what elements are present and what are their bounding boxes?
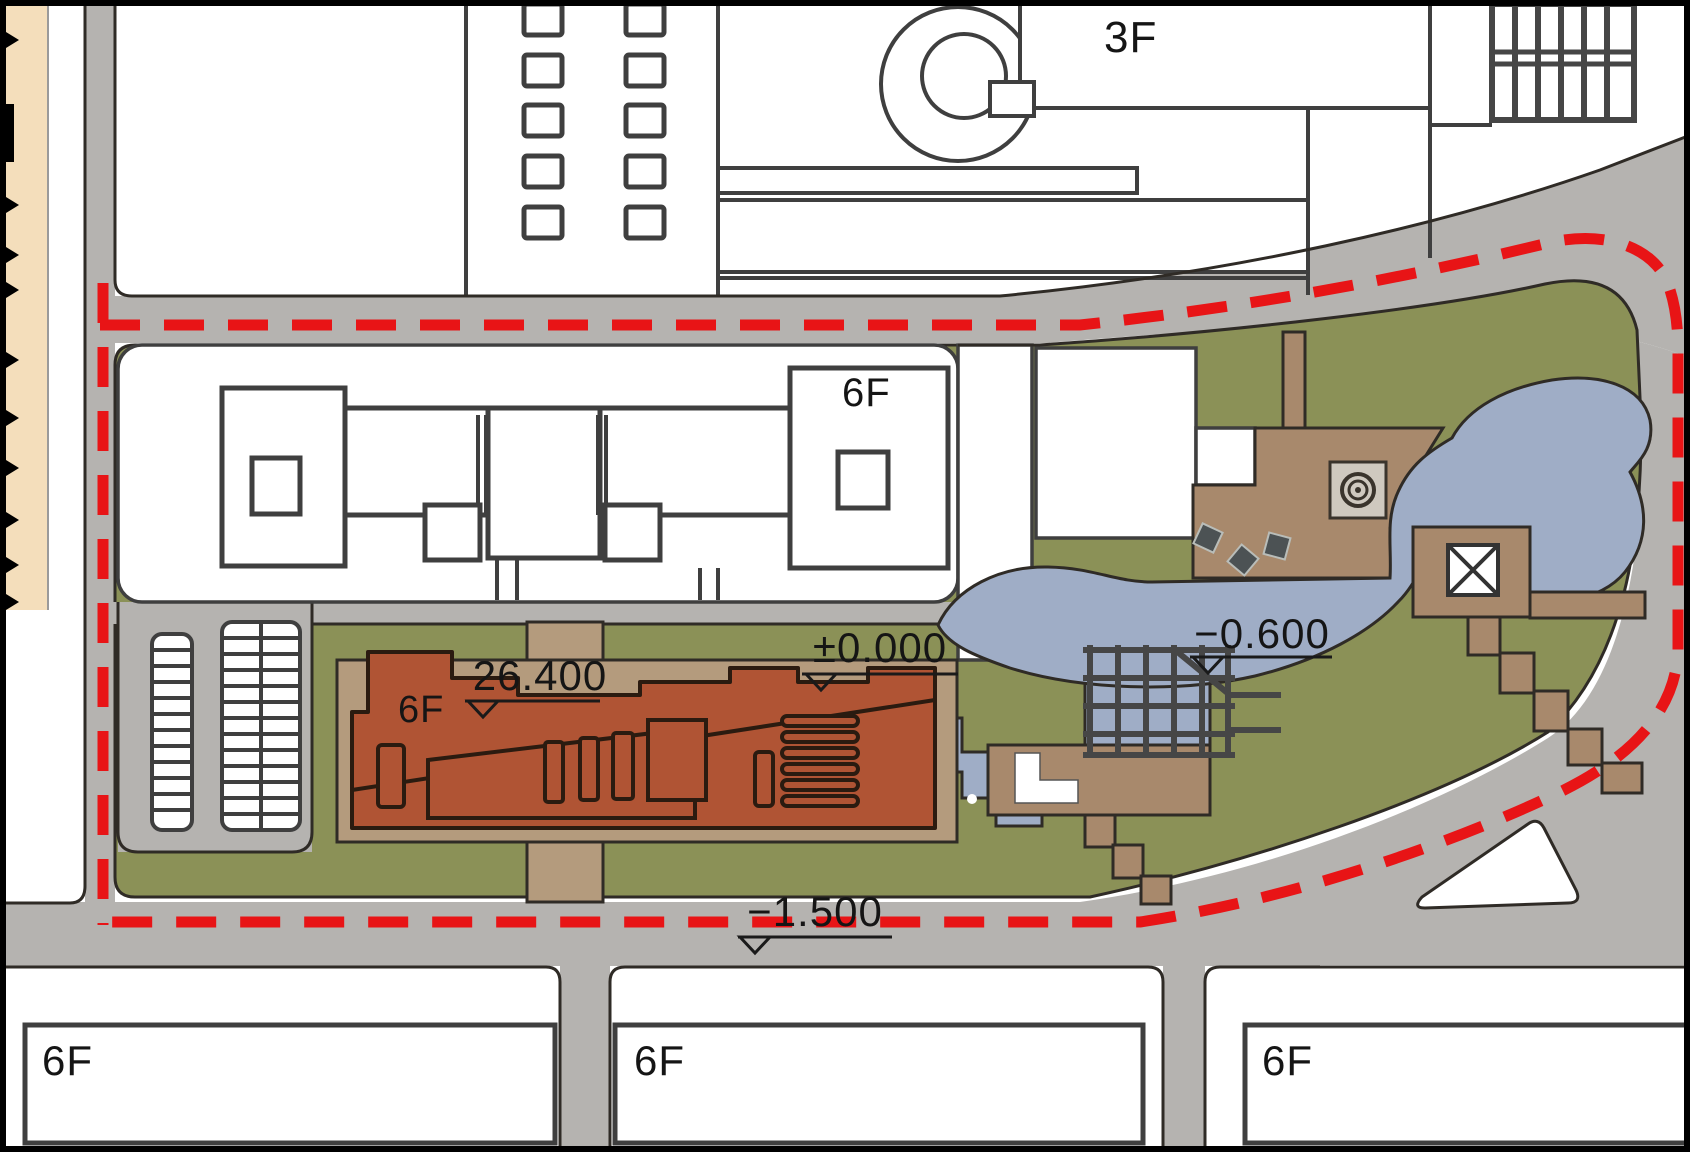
deck-stair-3: [1141, 876, 1171, 904]
new-building-core-1: [378, 745, 404, 807]
plaza-path-south: [527, 842, 603, 902]
elevation-pond-value: −0.600: [1194, 610, 1330, 657]
campus-south-block-2: [605, 505, 660, 560]
pavilion-stair-3: [1534, 691, 1568, 731]
campus-center-block: [488, 408, 600, 558]
site-plan-canvas: 6F: [0, 0, 1690, 1152]
north-trellis-icon: [1492, 4, 1634, 120]
deck-stair-2: [1113, 845, 1143, 878]
south-building-1: [25, 1025, 555, 1143]
building-3f-step: [990, 82, 1034, 116]
road-south: [0, 902, 1320, 966]
north-building-windows: [524, 4, 664, 238]
pavilion-stair-5: [1602, 763, 1642, 793]
fountain-center: [1355, 487, 1361, 493]
campus-tower-west-court: [252, 458, 300, 514]
north-plot-lines: [466, 2, 718, 295]
south-building-2-label: 6F: [634, 1037, 685, 1084]
site-plan-drawing: 6F: [0, 0, 1690, 1152]
plot-rect: [1036, 348, 1196, 538]
new-building-core-5: [755, 752, 773, 806]
campus-tower-floor-label: 6F: [842, 371, 891, 415]
campus-south-block-1: [425, 505, 480, 560]
new-building-core-2: [545, 742, 563, 802]
plot-notch: [1196, 428, 1255, 485]
campus-plot: 6F: [118, 345, 958, 602]
adjacent-strip-west: [5, 3, 48, 610]
parking-row-double: [222, 622, 300, 830]
road-south-branch-2: [1163, 950, 1205, 1152]
building-3f-floor-label: 3F: [1104, 13, 1157, 62]
south-building-2: [615, 1025, 1143, 1143]
new-building-block: [648, 720, 706, 800]
south-building-3-label: 6F: [1262, 1037, 1313, 1084]
parking-lot: [118, 602, 312, 852]
garden-path-north: [1283, 332, 1305, 432]
pavilion-stair-4: [1568, 729, 1602, 765]
elevation-entrance-value: ±0.000: [813, 624, 947, 671]
campus-tower-east-court: [838, 452, 888, 508]
road-south-branch-1: [560, 950, 610, 1152]
new-building-floor-label: 6F: [398, 689, 444, 731]
pavilion-stair-1: [1468, 617, 1500, 655]
parking-row-single: [152, 634, 192, 830]
deck-stair-1: [1085, 815, 1115, 847]
south-plots: 6F 6F 6F: [25, 1025, 1688, 1143]
building-3f-wing: [1020, 2, 1430, 108]
pavilion-path-east: [1530, 592, 1645, 618]
new-building-core-4: [613, 733, 633, 799]
stepping-stone-2: [967, 794, 977, 804]
elevation-roof-value: 26.400: [473, 652, 607, 699]
elevation-road-value: −1.500: [747, 888, 883, 935]
fountain: [1330, 462, 1386, 518]
building-3f: 3F: [881, 2, 1430, 161]
pavilion-stair-2: [1500, 653, 1534, 693]
south-building-1-label: 6F: [42, 1037, 93, 1084]
new-building-core-3: [580, 738, 598, 800]
